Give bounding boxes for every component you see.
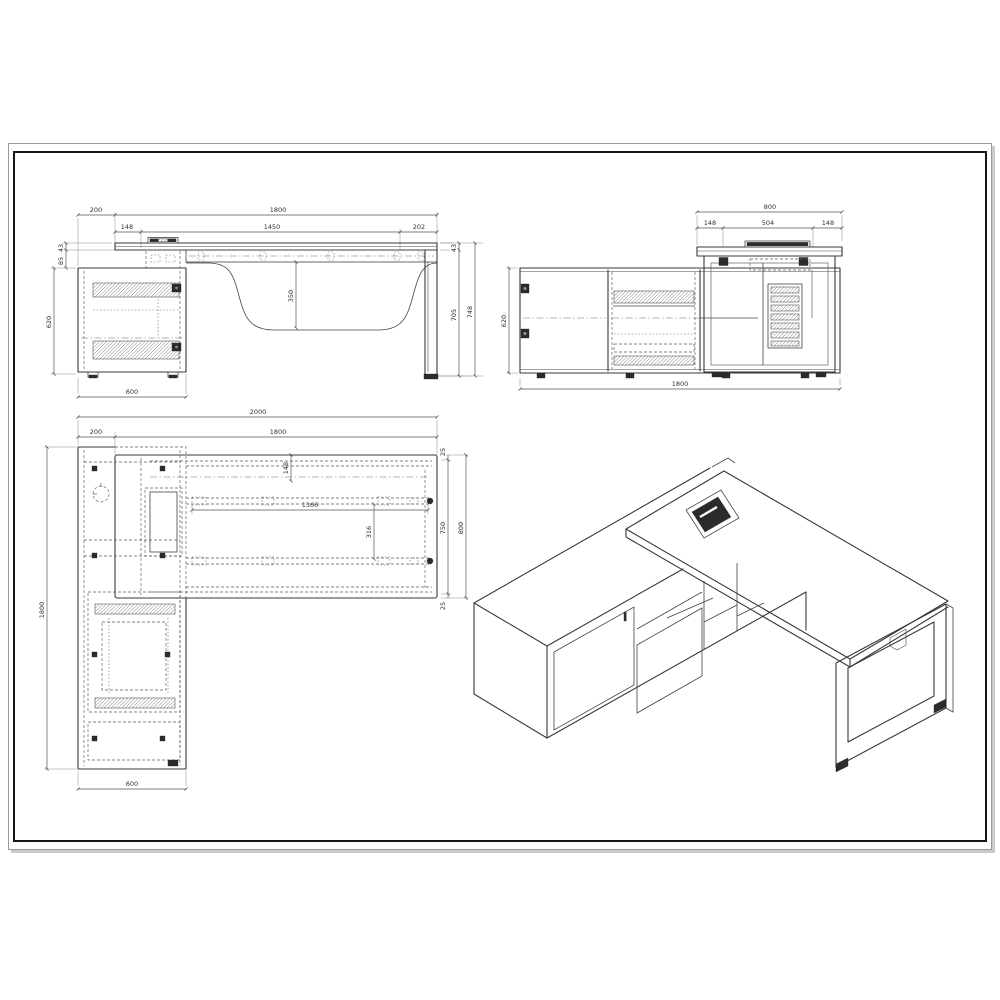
drawing-canvas: 200 1800 148 1450 202 43: [0, 0, 1000, 1000]
hinge-lower: [172, 343, 181, 351]
extension-lines: [44, 420, 469, 786]
iso-foot-left: [836, 758, 848, 772]
desk-leg-front: [424, 250, 438, 379]
grommet-underbox: [146, 250, 180, 268]
drawer-hidden-band: [614, 344, 694, 352]
dim-label-beam-depth: 85: [57, 257, 65, 265]
desk-top-plan: [115, 455, 437, 598]
dim-edge-gap-top: 25: [439, 448, 448, 460]
dim-rail-inset: 316: [365, 504, 374, 559]
dim-label-return-overhang: 200: [90, 428, 102, 436]
dim-label-grommet-inset-plan: 148: [282, 462, 290, 474]
dim-desk-depth-plan: 800: [457, 455, 466, 598]
dim-overall-length: 2000: [78, 408, 437, 417]
dim-frame-depth: 750: [439, 460, 448, 594]
dim-label-edge-gap-top: 25: [439, 448, 447, 456]
shelf-hatch-band: [614, 291, 694, 303]
dim-label-credenza-height: 620: [500, 315, 508, 327]
dim-rail-length: 1366: [192, 501, 428, 514]
dim-label-desk-depth: 800: [764, 203, 776, 211]
iso-door-handle: [624, 612, 626, 621]
dim-back-inset: 148: [813, 219, 842, 228]
dim-credenza-height: 620: [500, 268, 509, 373]
dim-label-total-width: 1800: [270, 206, 287, 214]
dim-top-thickness: 43: [57, 243, 66, 252]
cabinet-hatch-band-lower: [93, 341, 179, 359]
dim-label-panel-drop: 350: [287, 290, 295, 302]
dim-label-end-span: 202: [413, 223, 425, 231]
view-side-elevation: 800 148 504 148 620 1800: [500, 203, 842, 389]
dim-label-cabinet-depth: 600: [126, 388, 138, 396]
dim-label-right-top-thickness: 43: [450, 244, 458, 252]
hinge-lower: [521, 329, 529, 338]
dim-label-underside-height: 705: [450, 309, 458, 321]
cable-grommet-side: [745, 241, 810, 247]
hinge-upper: [521, 284, 529, 293]
dim-return-overhang: 200: [78, 428, 115, 437]
return-credenza-plan: [78, 447, 186, 769]
dim-edge-gap-bottom: 25: [439, 594, 448, 610]
view-front-elevation: 200 1800 148 1450 202 43: [45, 206, 483, 397]
dim-label-edge-gap-bottom: 25: [439, 602, 447, 610]
dim-desk-length: 1800: [115, 428, 437, 437]
dim-right-top-thickness: 43: [450, 243, 459, 252]
dim-credenza-length: 1800: [520, 380, 840, 389]
dim-overall-height: 748: [466, 243, 475, 376]
dim-label-desk-length: 1800: [270, 428, 287, 436]
desk-top-front: [115, 243, 437, 250]
dim-total-width: 1800: [115, 206, 437, 215]
cable-hole: [93, 483, 109, 502]
base-area-plan: [88, 722, 180, 766]
drawer-hatch-band: [614, 356, 694, 365]
credenza-feet: [537, 373, 809, 378]
dim-label-credenza-length: 1800: [672, 380, 689, 388]
cabinet-feet: [88, 372, 178, 378]
iso-back-tab: [712, 458, 735, 467]
technical-drawing: 200 1800 148 1450 202 43: [0, 0, 1000, 1000]
dim-front-inset: 148: [697, 219, 723, 228]
leg-frame-outer: [704, 256, 835, 372]
dim-label-overall-height: 748: [466, 306, 474, 318]
iso-shelf: [667, 598, 764, 622]
cable-grommet-front: [148, 238, 178, 244]
cabinet-hatch-band-upper: [93, 283, 179, 297]
dim-label-desk-depth-plan: 800: [457, 522, 465, 534]
dim-offset-left: 200: [78, 206, 115, 215]
dim-return-length: 1800: [38, 447, 47, 769]
return-cabinet-front: [78, 268, 186, 378]
frame-fitting-left: [719, 258, 728, 266]
dim-label-return-depth: 600: [126, 780, 138, 788]
desk-end-view: [697, 241, 842, 377]
grommet-plan: [145, 488, 182, 556]
frame-beam-bottom: [186, 557, 433, 565]
dim-label-offset-left: 200: [90, 206, 102, 214]
dim-label-grommet-inset: 148: [121, 223, 133, 231]
dim-underside-height: 705: [450, 250, 459, 376]
desk-apron: [186, 250, 437, 262]
modesty-panel-profile: [186, 263, 437, 330]
dim-cabinet-height: 620: [45, 268, 54, 374]
iso-cable-grommet: [686, 490, 739, 538]
extension-lines: [50, 212, 483, 394]
dim-desk-depth: 800: [697, 203, 842, 212]
view-plan: 2000 200 1800 148 1366 316: [38, 408, 469, 789]
cable-louver-vent: [768, 284, 802, 348]
dim-label-grommet-width: 504: [762, 219, 774, 227]
dim-end-span: 202: [400, 223, 437, 232]
dim-label-overall-length: 2000: [250, 408, 267, 416]
dim-return-depth: 600: [78, 780, 186, 789]
dim-label-back-inset: 148: [822, 219, 834, 227]
shelf-compartment-plan: [88, 592, 180, 712]
dim-label-front-inset: 148: [704, 219, 716, 227]
dim-label-top-thickness: 43: [57, 244, 65, 252]
dim-label-mid-span: 1450: [264, 223, 281, 231]
leg-frame-inner: [711, 263, 828, 365]
dim-label-rail-inset: 316: [365, 526, 373, 538]
iso-shelf-gap: [637, 592, 702, 629]
dim-label-return-length: 1800: [38, 602, 46, 619]
iso-desk-top: [626, 458, 948, 667]
dim-grommet-inset: 148: [115, 223, 141, 232]
dim-label-cabinet-height: 620: [45, 316, 53, 328]
iso-credenza: [474, 468, 806, 738]
dim-panel-drop: 350: [287, 262, 296, 328]
dim-grommet-width: 504: [723, 219, 813, 228]
dim-label-rail-length: 1366: [302, 501, 319, 509]
hinge-upper: [172, 284, 181, 292]
iso-leg-frame: [836, 604, 953, 772]
view-isometric: [474, 458, 953, 772]
dim-label-frame-depth: 750: [439, 522, 447, 534]
dim-mid-span: 1450: [141, 223, 400, 232]
dim-cabinet-depth: 600: [78, 388, 186, 397]
